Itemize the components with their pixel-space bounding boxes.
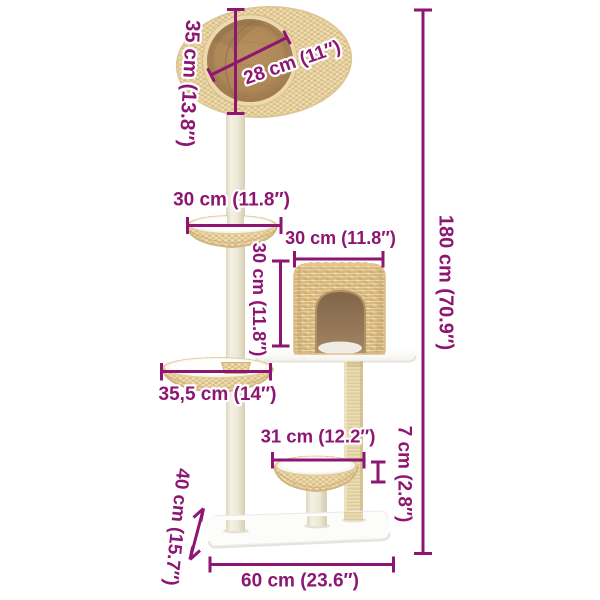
svg-text:30 cm (11.8″): 30 cm (11.8″) (173, 190, 290, 211)
svg-text:60 cm (23.6″): 60 cm (23.6″) (241, 571, 359, 592)
svg-text:180 cm (70.9″): 180 cm (70.9″) (435, 215, 457, 350)
svg-text:30 cm (11.8″): 30 cm (11.8″) (285, 228, 396, 248)
svg-text:30 cm (11.8″): 30 cm (11.8″) (249, 243, 270, 357)
svg-text:35,5 cm (14″): 35,5 cm (14″) (159, 384, 277, 405)
svg-text:7 cm (2.8″): 7 cm (2.8″) (394, 426, 415, 523)
svg-text:31 cm (12.2″): 31 cm (12.2″) (261, 426, 376, 447)
